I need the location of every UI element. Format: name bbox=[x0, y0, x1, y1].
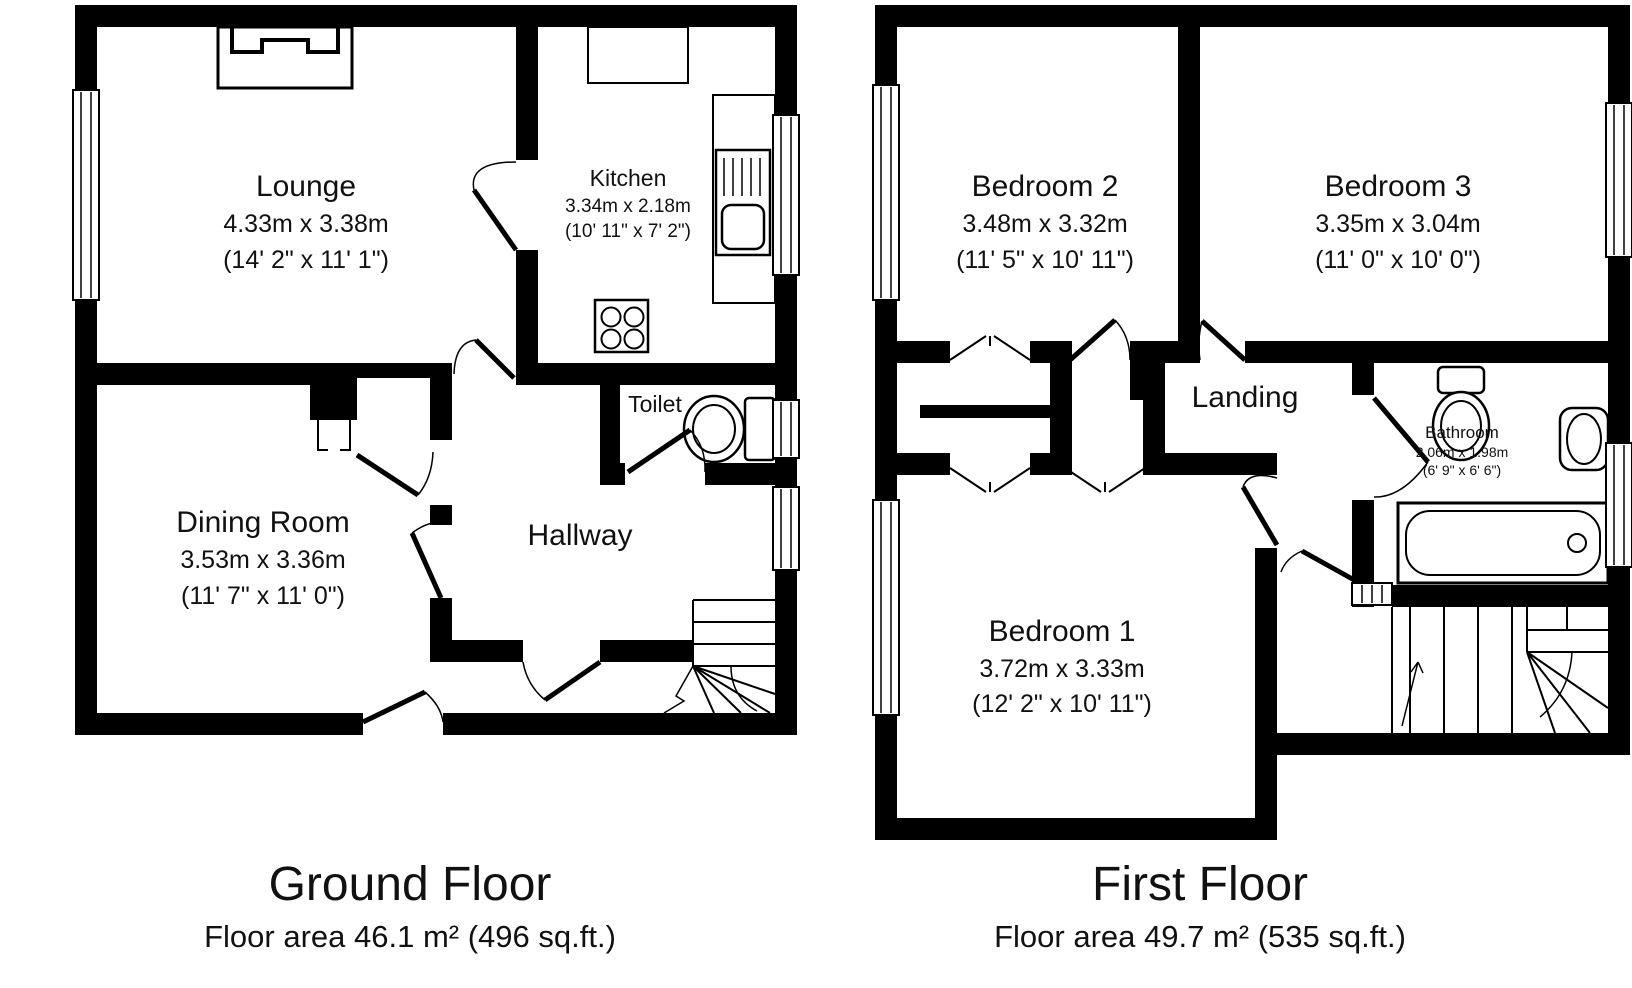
window-hallway bbox=[773, 487, 799, 570]
window-bathroom bbox=[1606, 443, 1632, 567]
label-lounge-dims-m: 4.33m x 3.38m bbox=[223, 210, 388, 238]
hob-icon bbox=[595, 300, 648, 352]
label-kitchen-dims-m: 3.34m x 2.18m bbox=[565, 196, 691, 217]
toilet-icon-ground bbox=[684, 396, 775, 462]
floorplan-canvas: Lounge 4.33m x 3.38m (14' 2" x 11' 1") K… bbox=[0, 0, 1632, 988]
label-kitchen: Kitchen bbox=[590, 165, 667, 191]
ground-floor-plan: Lounge 4.33m x 3.38m (14' 2" x 11' 1") K… bbox=[73, 5, 799, 954]
label-bedroom1: Bedroom 1 bbox=[989, 615, 1136, 648]
window-bedroom3 bbox=[1606, 103, 1632, 257]
window-bedroom2 bbox=[873, 85, 899, 300]
first-floor-area: Floor area 49.7 m² (535 sq.ft.) bbox=[994, 919, 1406, 954]
label-lounge-dims-ft: (14' 2" x 11' 1") bbox=[223, 246, 389, 274]
window-lounge bbox=[73, 90, 99, 300]
label-bathroom-dims-ft: (6' 9" x 6' 6") bbox=[1423, 462, 1501, 478]
kitchen-counter-top bbox=[588, 27, 688, 83]
door-bedroom2 bbox=[1070, 320, 1130, 360]
ground-floor-title: Ground Floor bbox=[269, 858, 552, 911]
door-dining bbox=[357, 452, 433, 495]
label-bedroom2-dims-ft: (11' 5" x 10' 11") bbox=[956, 246, 1134, 274]
label-bedroom2-dims-m: 3.48m x 3.32m bbox=[962, 210, 1127, 238]
door-lobby bbox=[523, 662, 600, 700]
bifold-bedroom2-closet bbox=[950, 336, 1030, 360]
label-bedroom3-dims-m: 3.35m x 3.04m bbox=[1315, 210, 1480, 238]
door-kitchen bbox=[473, 162, 516, 250]
label-dining-dims-ft: (11' 7" x 11' 0") bbox=[181, 582, 345, 610]
label-toilet: Toilet bbox=[628, 391, 682, 417]
label-bedroom1-dims-ft: (12' 2" x 10' 11") bbox=[972, 690, 1152, 718]
floorplan-page: Lounge 4.33m x 3.38m (14' 2" x 11' 1") K… bbox=[0, 0, 1632, 988]
label-landing: Landing bbox=[1192, 381, 1299, 414]
bifold-bedroom1-closet-right bbox=[1065, 468, 1145, 492]
label-bedroom1-dims-m: 3.72m x 3.33m bbox=[979, 655, 1144, 683]
bifold-bedroom1-closet-left bbox=[950, 468, 1030, 492]
window-kitchen bbox=[773, 115, 799, 275]
kitchen-sink-icon bbox=[716, 150, 770, 255]
ground-floor-walls bbox=[75, 5, 797, 735]
window-bedroom1 bbox=[873, 500, 899, 715]
door-front bbox=[363, 692, 443, 722]
bathtub-icon bbox=[1398, 503, 1608, 583]
label-dining-dims-m: 3.53m x 3.36m bbox=[180, 546, 345, 574]
label-bathroom: Bathroom bbox=[1425, 423, 1499, 442]
chimney-recess bbox=[318, 420, 350, 450]
ground-floor-area: Floor area 46.1 m² (496 sq.ft.) bbox=[204, 919, 616, 954]
label-kitchen-dims-ft: (10' 11" x 7' 2") bbox=[565, 221, 691, 242]
door-stairs-landing bbox=[1281, 551, 1356, 581]
first-floor-plan: Bedroom 2 3.48m x 3.32m (11' 5" x 10' 11… bbox=[873, 5, 1632, 954]
first-floor-title: First Floor bbox=[1092, 858, 1308, 911]
fireplace-icon bbox=[218, 27, 352, 88]
label-bathroom-dims-m: 2.06m x 1.98m bbox=[1416, 444, 1509, 460]
label-bedroom3-dims-ft: (11' 0" x 10' 0") bbox=[1315, 246, 1481, 274]
label-lounge: Lounge bbox=[256, 170, 356, 203]
door-hall-kitchen bbox=[454, 340, 514, 378]
label-hallway: Hallway bbox=[527, 519, 632, 552]
door-bedroom3 bbox=[1199, 321, 1245, 360]
door-hall-lower bbox=[412, 523, 441, 598]
label-bedroom2: Bedroom 2 bbox=[972, 170, 1119, 203]
label-bedroom3: Bedroom 3 bbox=[1325, 170, 1472, 203]
basin-icon bbox=[1560, 408, 1608, 470]
stair-threshold bbox=[1352, 583, 1392, 605]
door-bedroom1 bbox=[1243, 475, 1277, 545]
stairs-first bbox=[1392, 607, 1608, 733]
window-toilet bbox=[773, 400, 799, 458]
label-dining: Dining Room bbox=[176, 506, 349, 539]
